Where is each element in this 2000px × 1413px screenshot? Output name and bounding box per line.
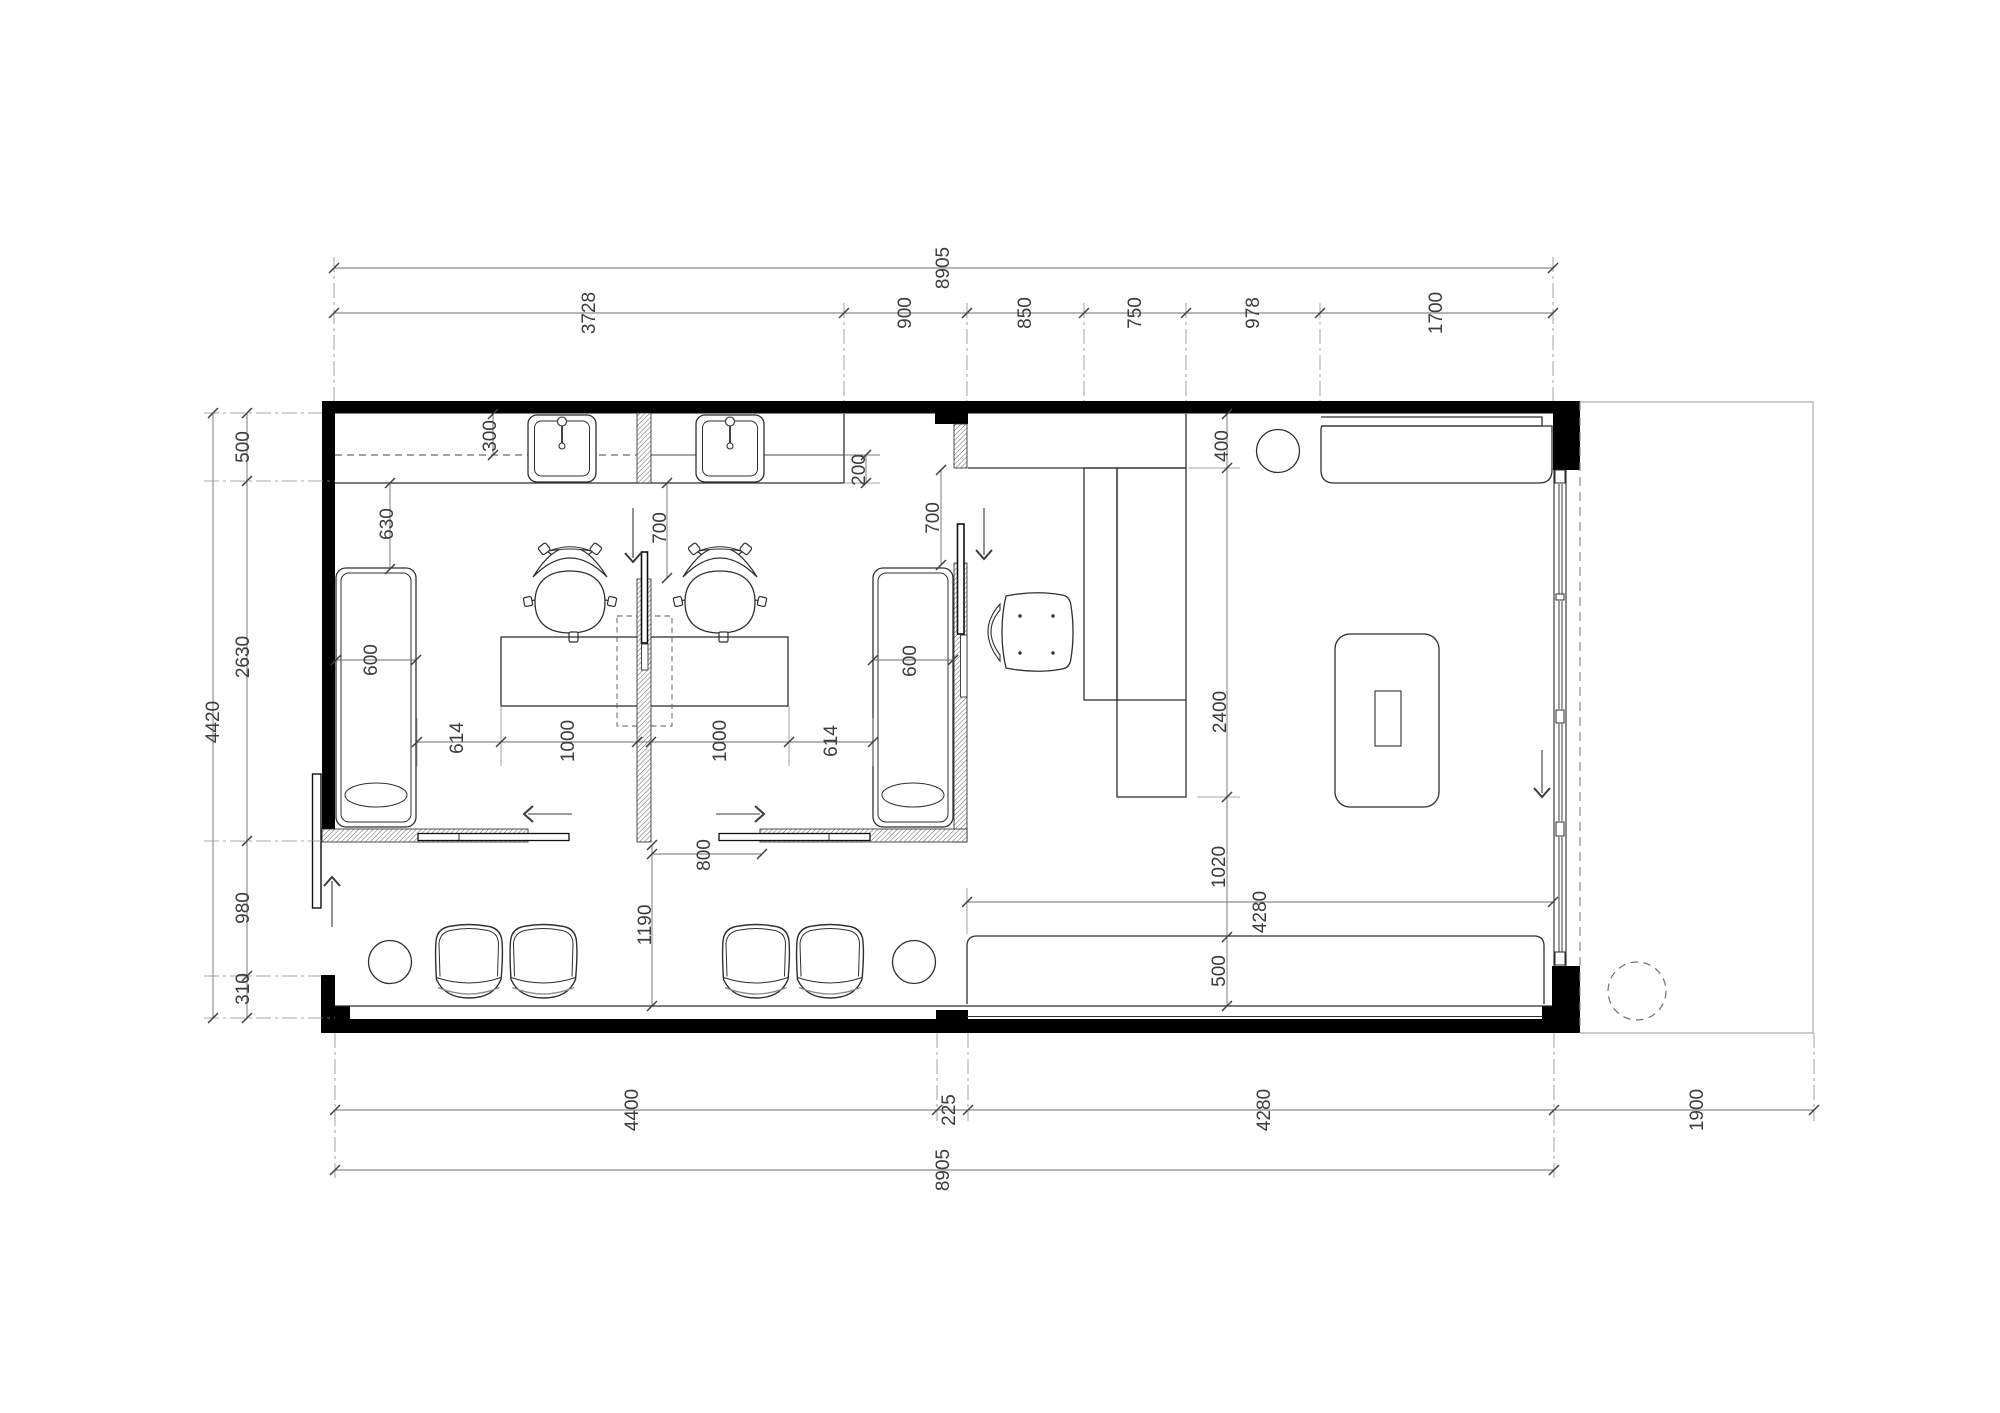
svg-text:400: 400 [1212, 430, 1233, 462]
svg-text:500: 500 [233, 431, 254, 463]
svg-text:630: 630 [377, 508, 398, 540]
svg-text:1700: 1700 [1426, 292, 1447, 334]
svg-text:4400: 4400 [622, 1089, 643, 1131]
svg-text:200: 200 [849, 454, 870, 486]
svg-text:1020: 1020 [1209, 846, 1230, 888]
svg-text:614: 614 [447, 722, 468, 754]
svg-text:700: 700 [650, 512, 671, 544]
svg-text:2630: 2630 [233, 636, 254, 678]
svg-text:4420: 4420 [203, 701, 224, 743]
svg-text:1000: 1000 [710, 720, 731, 762]
svg-text:4280: 4280 [1254, 1089, 1275, 1131]
svg-text:8905: 8905 [933, 1149, 954, 1191]
svg-text:4280: 4280 [1250, 891, 1271, 933]
svg-text:980: 980 [233, 892, 254, 924]
svg-text:614: 614 [821, 725, 842, 757]
svg-text:300: 300 [480, 420, 501, 452]
svg-text:1000: 1000 [558, 720, 579, 762]
svg-text:2400: 2400 [1210, 691, 1231, 733]
svg-text:750: 750 [1125, 297, 1146, 329]
svg-text:500: 500 [1209, 955, 1230, 987]
svg-text:310: 310 [233, 973, 254, 1005]
svg-text:600: 600 [361, 644, 382, 676]
svg-text:1190: 1190 [635, 905, 656, 946]
svg-text:900: 900 [895, 297, 916, 329]
svg-text:800: 800 [694, 839, 715, 871]
svg-text:978: 978 [1243, 297, 1264, 329]
svg-text:1900: 1900 [1687, 1089, 1708, 1131]
svg-text:700: 700 [923, 502, 944, 534]
svg-text:225: 225 [939, 1094, 960, 1126]
svg-text:8905: 8905 [933, 247, 954, 289]
svg-text:3728: 3728 [579, 292, 600, 334]
svg-text:850: 850 [1015, 297, 1036, 329]
svg-text:600: 600 [900, 645, 921, 677]
